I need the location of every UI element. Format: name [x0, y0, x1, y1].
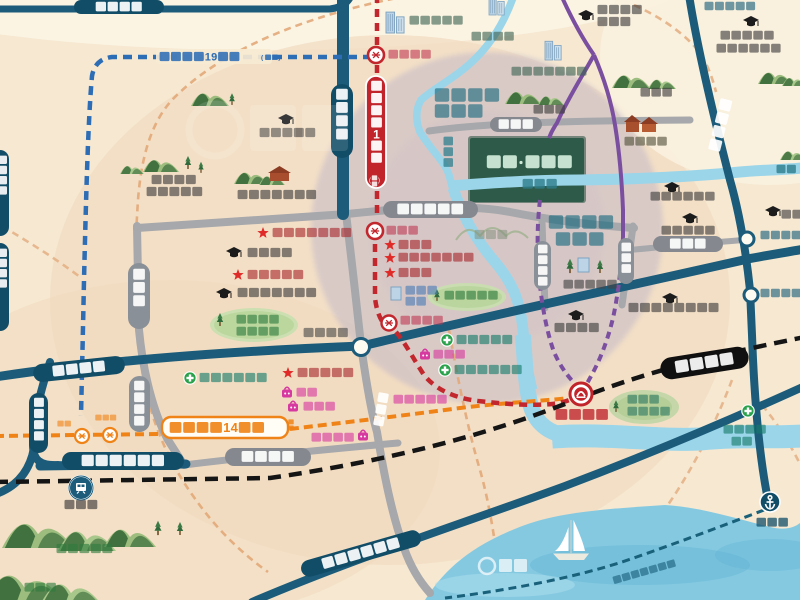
svg-text:1: 1	[223, 420, 230, 435]
svg-text:): )	[278, 55, 280, 62]
svg-text:9: 9	[211, 52, 217, 64]
svg-text:4: 4	[231, 420, 239, 435]
svg-text:1: 1	[373, 128, 380, 142]
svg-text:(: (	[369, 178, 371, 184]
svg-text:): )	[378, 178, 380, 184]
svg-text:1: 1	[205, 52, 211, 64]
